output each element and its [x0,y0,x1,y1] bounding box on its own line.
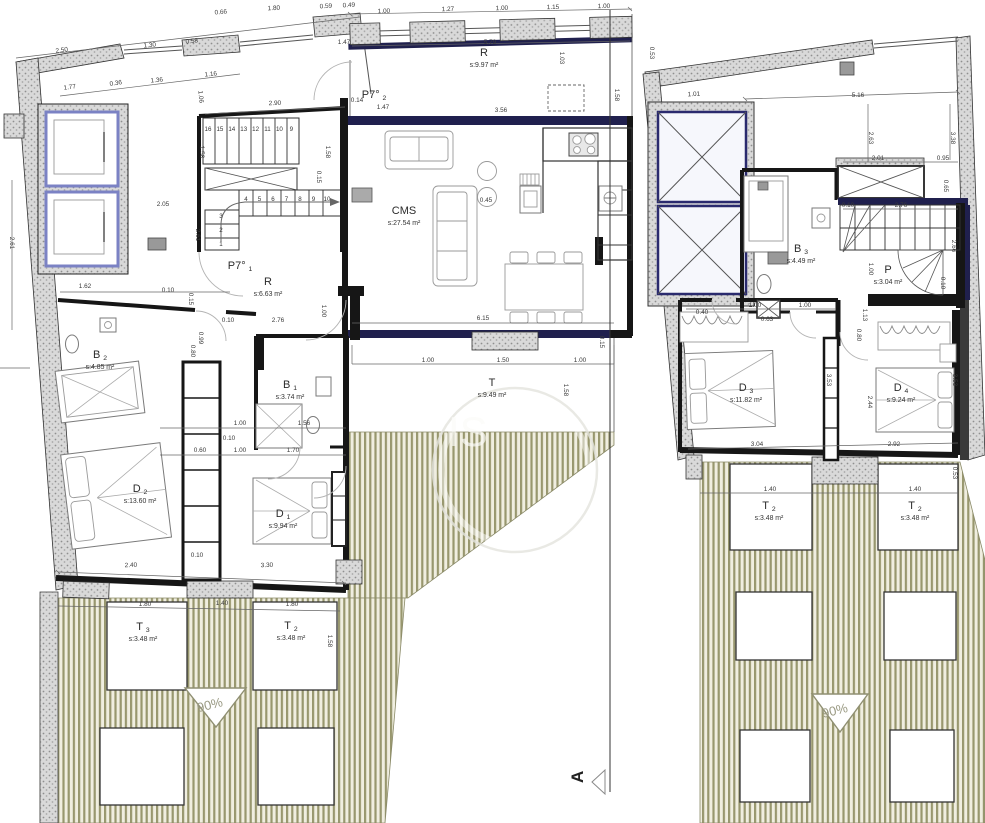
terrace-opening [884,592,956,660]
room-area-label: s:4.85 m² [86,364,115,371]
stair-numbers-lower-a: 123 [219,213,223,248]
stair-number: 3 [219,213,223,220]
room-area-label: s:3.04 m² [874,279,903,286]
stair-number: 4 [244,196,248,203]
dimension-label: 0.10 [162,287,175,294]
stair-number: 11 [264,126,271,133]
dimension-label: 0.95 [937,155,950,162]
dimension-label: 1.77 [63,83,77,92]
dimension-label: 5.16 [852,92,865,99]
dimension-label: 0.53 [648,47,655,60]
room-label: R [264,276,272,288]
stair-number: 6 [271,196,275,203]
toilet [66,335,79,353]
dimension-label: 0.36 [109,79,123,88]
room-label: CMS [392,205,416,217]
room-area-label: s:9.94 m² [269,523,298,530]
dimension-label: 0.15 [187,293,194,306]
pillow [312,482,327,508]
pillow [690,393,707,424]
wall-pier [63,581,110,599]
dimension-label: 2.44 [866,396,873,409]
dimension-label: 1.70 [287,447,300,454]
sofa-main [433,186,477,286]
room-area-label: s:3.48 m² [129,636,158,643]
stair-number: 10 [324,196,331,203]
pillow [938,372,952,398]
room-area-label: s:27.54 m² [388,220,421,227]
floor-plan: IS 90% 90% [0,0,985,823]
stair-number: 10 [276,126,283,133]
stair-landing-cross [205,168,297,190]
room-label: B 2 [93,349,107,362]
dimension-label: 3.04 [751,441,764,448]
toilet [757,275,771,294]
room-area-label: s:6.63 m² [254,291,283,298]
dimension-label: 6.15 [477,315,490,322]
stair-treads-upper [215,118,287,164]
room-label: B 1 [283,379,297,392]
dimension-label: 2.05 [157,201,170,208]
room-area-label: s:13.60 m² [124,498,157,505]
washbasin [316,377,331,396]
skylight-dashed [548,85,584,111]
dimension-label: 3.56 [495,107,508,114]
terrace-opening [740,730,810,802]
stair-numbers-upper: 161514131211109 [205,126,294,133]
wall-pier [686,455,702,479]
elevator-shafts-right [648,102,754,306]
dimension-label: 0.40 [696,309,709,316]
dimension-label: 1.00 [234,420,247,427]
dimension-label: 1.58 [562,384,569,397]
stair-number: 1 [219,241,223,248]
dimension-label: 2.40 [125,562,138,569]
wall-pier [336,560,362,584]
dimension-label: 0.58 [185,37,199,45]
room-label: T [489,377,496,389]
dimension-label: 1.58 [324,146,331,159]
nightstand [940,344,956,362]
dimension-label: 1.01 [688,91,701,99]
dimension-label: 2.92 [888,441,901,448]
stair-number: 8 [298,196,302,203]
dimension-label: 0.60 [194,447,207,454]
dimension-label: 5.79 [484,39,497,46]
dimension-label: 3.53 [825,374,832,387]
dimension-label: 1.06 [196,90,204,104]
stair-number: 14 [228,126,235,133]
room-label: R [480,47,488,59]
dimension-label: 1.13 [861,309,868,322]
stair-number: 15 [216,126,223,133]
dimension-label: 2.66 [950,240,957,253]
room-label: P [884,264,891,276]
dimension-label: 1.80 [286,601,299,608]
dimension-label: 2.61 [194,229,201,242]
dimension-label: 1.00 [749,302,762,309]
stair-number: 16 [205,126,212,133]
dimension-label: 0.49 [343,2,356,10]
pillow [312,512,327,538]
dimension-label: 1.56 [298,420,311,427]
dimension-label: 1.00 [799,302,812,309]
winder-lines [843,205,885,252]
room-area-label: s:4.49 m² [787,258,816,265]
closet-d3 [680,312,748,342]
room-area-label: s:9.97 m² [470,62,499,69]
dimension-label: 0.63 [761,316,774,323]
room-label: B 3 [794,243,808,256]
dimension-label: 0.99 [197,332,204,345]
room-area-label: s:3.74 m² [276,394,305,401]
bathroom-b3 [744,176,830,294]
stair-number: 2 [219,227,223,234]
pillow [689,359,706,390]
dimension-label: 0.53 [951,467,958,480]
terrace-opening [100,728,184,805]
dimension-label: 1.47 [338,39,351,46]
dimension-label: 0.45 [480,197,493,204]
stair-number: 5 [258,196,262,203]
wardrobe-column [183,362,220,580]
stairwell [203,118,341,250]
terrace-opening [258,728,334,805]
room-area-label: s:11.82 m² [730,397,763,404]
room-area-label: s:3.48 m² [901,515,930,522]
dimension-label: 2.90 [269,100,282,107]
dimension-label: 1.00 [234,447,247,454]
dimension-label: 1.16 [204,70,218,78]
dimension-label: 1.00 [320,305,327,318]
dimension-label: 0.10 [939,277,946,290]
dimension-label: 1.40 [764,486,777,493]
dimension-label: 1.47 [377,104,390,111]
closet-d4 [878,322,950,350]
stair-wall [868,294,960,306]
dimension-label: 2.76 [895,202,908,209]
dimension-label: 1.80 [267,5,280,13]
pillow [938,402,952,428]
section-arrow [592,770,605,794]
dimension-label: 1.30 [143,41,157,49]
dimension-label: 1.00 [598,3,611,10]
dimension-label: 0.15 [598,336,605,349]
dimension-label: 1.00 [378,8,391,15]
dimension-label: 1.00 [496,5,509,12]
dimension-label: 3.38 [949,132,956,145]
stair-treads-lower [253,190,323,216]
pillow [65,456,90,498]
sofa-top [385,131,453,169]
dimension-label: 0.10 [842,202,855,209]
stair-number: 9 [290,126,294,133]
wall-pier [812,457,878,484]
stair-number: 13 [240,126,247,133]
stair-treads [855,205,945,250]
window-lines-right [874,37,958,48]
dimension-label: 1.58 [326,635,333,648]
terrace-opening [107,602,187,690]
stair-number: 7 [285,196,289,203]
elevator-car [54,120,104,174]
dimension-label: 0.10 [222,317,235,324]
dimension-label: 2.61 [8,237,15,250]
room-area-label: s:3.48 m² [277,635,306,642]
room-area-label: s:3.48 m² [755,515,784,522]
dimension-label: 1.15 [547,4,560,11]
dimension-label: 1.62 [79,283,92,290]
central-wardrobe [824,338,838,460]
terrace-opening [890,730,954,802]
dimension-label: 1.03 [558,52,565,65]
terrace-opening [736,592,812,660]
closet [332,472,346,546]
dimension-label: 2.01 [872,155,885,162]
room-label: P7° 1 [228,260,253,273]
dimension-label: 1.40 [909,486,922,493]
dimension-label: 1.58 [198,146,205,159]
dimension-label: 0.66 [214,8,227,16]
spiral-treads [898,250,943,295]
stair-number: 12 [252,126,259,133]
dimension-label: 1.27 [442,6,455,13]
room-area-label: s:9.49 m² [478,392,507,399]
window-lines-top-left [124,28,371,94]
floor-plan-canvas: IS 90% 90% [0,0,985,823]
dimension-label: 1.00 [574,357,587,364]
dimension-label: 1.40 [216,600,229,607]
dimension-label: 0.15 [315,171,322,184]
dimension-label: 1.50 [497,357,510,364]
dimension-label: 1.36 [150,76,164,84]
terrace-opening [253,602,337,690]
dimension-label: 1.80 [139,601,152,608]
watermark-text: IS [448,408,488,455]
bedroom-d1-bed [253,472,346,546]
dimension-label: 0.10 [223,435,236,442]
dimension-label: 1.58 [613,89,620,102]
dimension-label: 0.59 [320,3,333,11]
left-unit [4,13,632,599]
accent-wall [348,116,632,125]
dimension-label: 0.14 [351,97,364,104]
stair-number: 9 [312,196,316,203]
dining-table [505,252,583,323]
dimension-label: 2.63 [867,132,874,145]
stair-direction-arrow [221,202,330,242]
dimension-label: 1.00 [422,357,435,364]
dimension-label: 1.00 [867,263,874,276]
dimension-label: 0.80 [189,345,196,358]
dimension-label: 3.53 [951,374,958,387]
roof-edge-band [40,592,58,823]
room-area-label: s:9.24 m² [887,397,916,404]
room-label: P7° 2 [362,89,387,102]
dimension-label: 0.10 [191,552,204,559]
elevator-block [38,104,128,274]
bedroom-d2-bed [61,443,172,549]
kitchen [520,128,632,260]
dimension-label: 0.80 [855,329,862,342]
dimension-label: 0.65 [942,180,949,193]
bedroom-d4-bed [876,344,956,432]
section-label: A [568,771,587,783]
dimension-label: 3.30 [261,562,274,569]
wall-pier [187,581,253,598]
bedroom-d3-bed [685,350,776,429]
dimension-label: 2.76 [272,317,285,324]
elevator-car [54,200,104,254]
pillow [70,500,95,542]
wall-pier [472,332,538,350]
